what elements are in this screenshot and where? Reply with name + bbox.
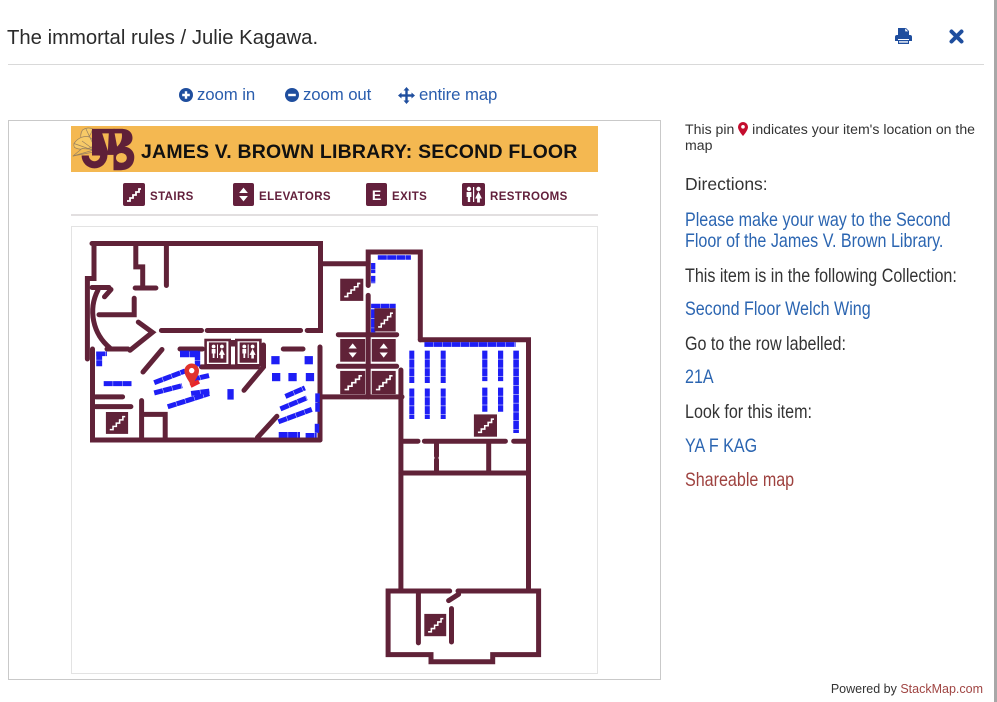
svg-text:E: E	[372, 187, 381, 203]
